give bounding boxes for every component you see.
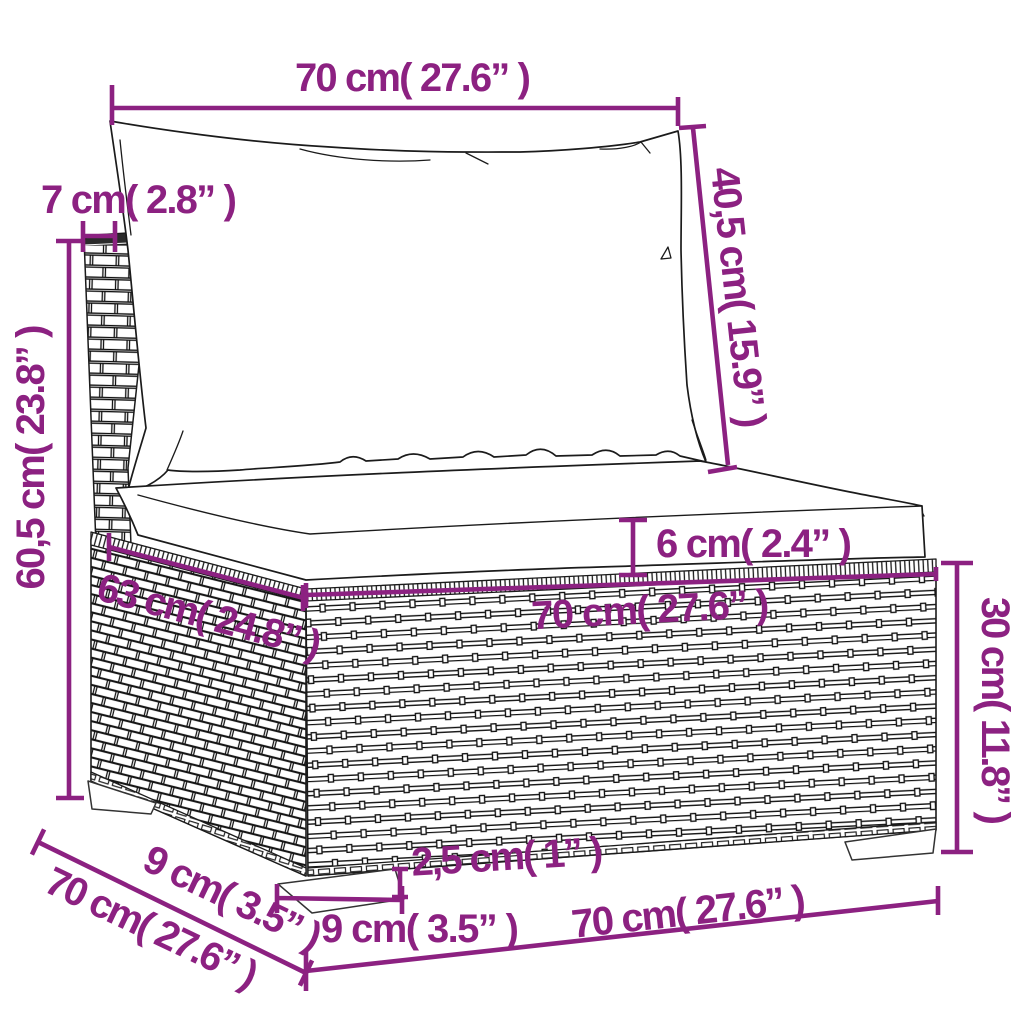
svg-text:9 cm( 3.5” ): 9 cm( 3.5” ) (321, 907, 519, 951)
svg-text:60,5 cm( 23.8” ): 60,5 cm( 23.8” ) (9, 325, 53, 590)
svg-text:70 cm( 27.6” ): 70 cm( 27.6” ) (569, 877, 807, 947)
svg-text:30 cm( 11.8” ): 30 cm( 11.8” ) (973, 597, 1017, 825)
svg-text:70 cm( 27.6” ): 70 cm( 27.6” ) (295, 56, 531, 100)
svg-text:6 cm( 2.4” ): 6 cm( 2.4” ) (656, 522, 852, 566)
svg-text:7 cm( 2.8” ): 7 cm( 2.8” ) (41, 178, 237, 222)
